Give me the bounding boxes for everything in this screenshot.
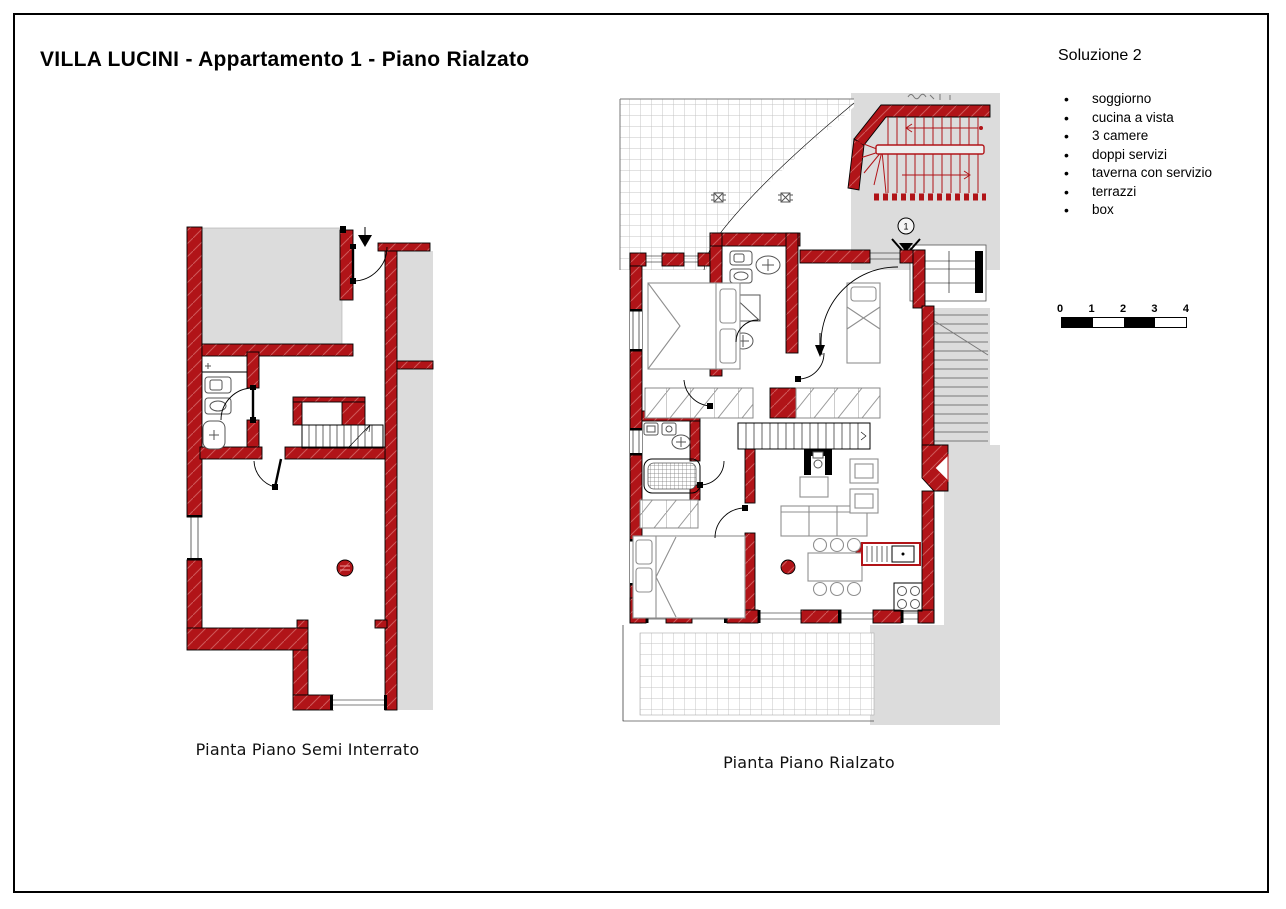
solution-list: soggiorno cucina a vista 3 camere doppi … [1058, 92, 1273, 218]
column [337, 560, 353, 576]
semi-interrato-plan-drawing [180, 225, 435, 715]
scale-label: 3 [1151, 303, 1157, 315]
list-item: soggiorno [1058, 92, 1273, 107]
solution-panel: Soluzione 2 soggiorno cucina a vista 3 c… [1058, 47, 1273, 222]
scale-label: 4 [1183, 303, 1189, 315]
scale-label: 1 [1088, 303, 1094, 315]
list-item: box [1058, 203, 1273, 218]
semi-interrato-caption: Pianta Piano Semi Interrato [180, 740, 435, 759]
coffee-table [800, 477, 828, 497]
drain-icon [778, 193, 793, 202]
fireplace [804, 449, 832, 475]
dining-table [808, 539, 862, 596]
list-item: terrazzi [1058, 185, 1273, 200]
list-item: 3 camere [1058, 129, 1273, 144]
rialzato-plan-drawing: 1 [618, 93, 1000, 725]
scale-bar: 0 1 2 3 4 [1057, 303, 1191, 328]
armchair [850, 489, 878, 513]
page-title: VILLA LUCINI - Appartamento 1 - Piano Ri… [40, 48, 529, 72]
scale-label: 2 [1120, 303, 1126, 315]
stairs-to-taverna [302, 425, 383, 448]
interior-stairs [738, 423, 870, 449]
bedroom-1-bed [648, 283, 740, 369]
list-item: taverna con servizio [1058, 166, 1273, 181]
bedroom-3-bed [633, 536, 745, 618]
lower-terrace [623, 625, 874, 721]
scale-label: 0 [1057, 303, 1063, 315]
list-item: cucina a vista [1058, 111, 1273, 126]
column [781, 560, 795, 574]
windows [187, 515, 387, 710]
bathtub-icon [644, 459, 700, 493]
bedroom-2-bed [847, 283, 880, 363]
scale-bar-labels: 0 1 2 3 4 [1057, 303, 1189, 315]
solution-heading: Soluzione 2 [1058, 47, 1273, 65]
living-room-furniture [781, 459, 878, 596]
entrance-arrow-icon [358, 235, 372, 247]
kitchen [862, 543, 922, 611]
list-item: doppi servizi [1058, 148, 1273, 163]
entrance-marker-number: 1 [903, 222, 908, 232]
rialzato-caption: Pianta Piano Rialzato [618, 753, 1000, 772]
stove-icon [894, 583, 922, 611]
armchair [850, 459, 878, 483]
scale-bar-segments [1061, 317, 1187, 328]
